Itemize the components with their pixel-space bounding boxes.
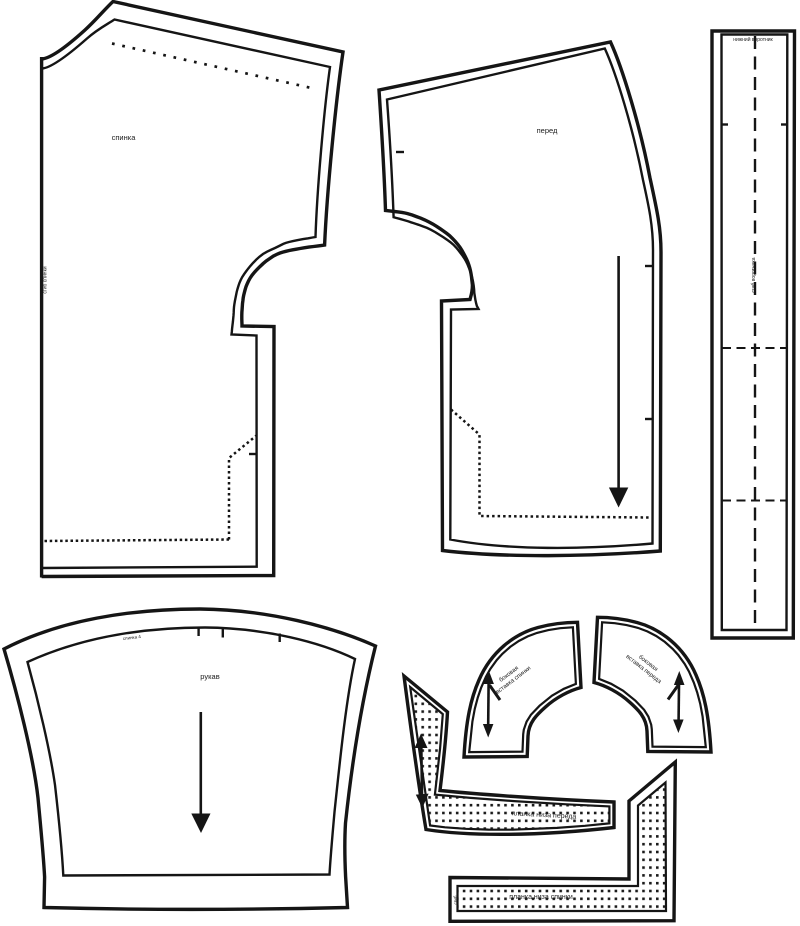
svg-text:рукав: рукав — [200, 672, 219, 681]
svg-text:сгиб: сгиб — [453, 895, 458, 904]
svg-text:перед: перед — [537, 126, 558, 135]
svg-text:нижний воротник: нижний воротник — [733, 36, 773, 43]
svg-text:планка низа спинки: планка низа спинки — [509, 894, 573, 901]
svg-text:сгиб воротника: сгиб воротника — [751, 257, 757, 292]
svg-text:сгиб спинки: сгиб спинки — [43, 266, 49, 293]
svg-text:спинка: спинка — [112, 133, 137, 142]
